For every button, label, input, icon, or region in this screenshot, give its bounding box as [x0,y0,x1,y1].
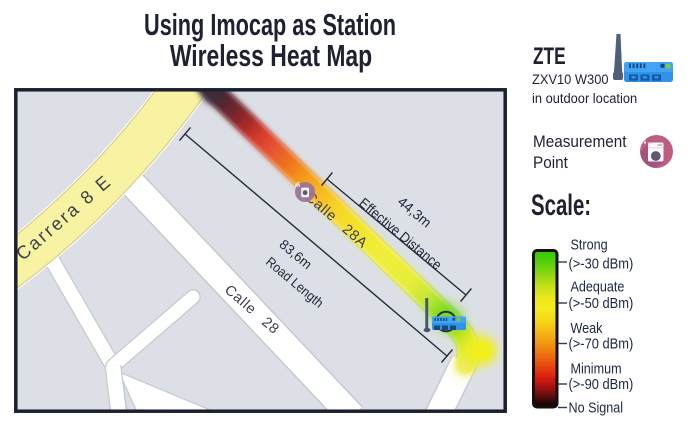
svg-text:ZXV10 W300: ZXV10 W300 [532,72,609,88]
svg-text:ZTE: ZTE [533,43,566,69]
svg-text:Adequate: Adequate [571,278,625,295]
svg-text:(>-50 dBm): (>-50 dBm) [569,294,634,311]
svg-text:Strong: Strong [571,235,608,252]
svg-text:Point: Point [533,153,568,172]
svg-text:(>-30 dBm): (>-30 dBm) [569,255,634,272]
svg-text:Scale:: Scale: [531,189,591,222]
svg-text:(>-70 dBm): (>-70 dBm) [569,335,634,352]
svg-text:Measurement: Measurement [533,132,627,151]
svg-text:in outdoor location: in outdoor location [532,91,637,107]
svg-text:(>-90 dBm): (>-90 dBm) [569,375,634,392]
svg-text:Wireless Heat Map: Wireless Heat Map [170,38,372,73]
svg-text:No Signal: No Signal [569,399,624,416]
